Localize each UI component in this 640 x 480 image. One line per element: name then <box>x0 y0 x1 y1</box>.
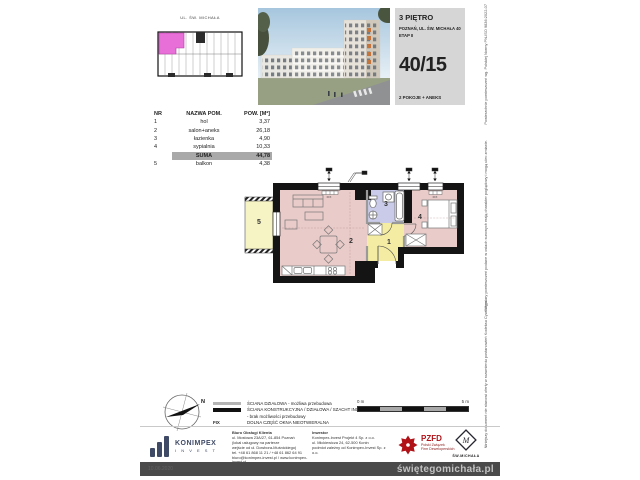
header-name: NAZWA POM. <box>172 110 236 118</box>
suma-area: 44,78 <box>236 152 272 160</box>
row-name: łazienka <box>172 135 236 143</box>
partition-wall-swatch <box>213 402 243 405</box>
row-nr: 3 <box>152 135 172 143</box>
konimpex-logo: KONIMPEX I N V E S T <box>148 433 217 459</box>
layout-label: 2 POKOJE + ANEKS <box>399 95 461 100</box>
table-row: 3 łazienka 4,90 <box>152 135 272 143</box>
michala-diamond-icon: M <box>454 429 478 453</box>
konimpex-sub: I N V E S T <box>175 448 217 453</box>
suma-row: SUMA 44,78 <box>152 152 272 160</box>
row-area: 26,18 <box>236 126 272 134</box>
row-nr: 4 <box>152 143 172 151</box>
window-bathroom <box>398 183 420 190</box>
room-number-hol: 1 <box>387 239 391 246</box>
legend-structural-text-2: - brak możliwości przebudowy <box>247 414 306 419</box>
scale-bar-segments <box>357 406 469 412</box>
address-label: POZNAŃ, UL. ŚW. MICHAŁA 40 <box>399 26 461 31</box>
row-area: 4,90 <box>236 135 272 143</box>
website-label: świętegomichała.pl <box>397 464 494 475</box>
table-row: 4 sypialnia 10,33 <box>152 143 272 151</box>
building-middle <box>292 48 346 78</box>
header-nr: NR <box>152 110 172 118</box>
room-table: NR NAZWA POM. POW. [M²] 1 hol 3,37 2 sal… <box>152 110 272 168</box>
legend-partition-text: ŚCIANA DZIAŁOWA - możliwa przebudowa <box>247 401 332 406</box>
row-name: salon+aneks <box>172 126 236 134</box>
row-area: 3,37 <box>236 118 272 126</box>
scale-start-label: 0 m <box>357 399 364 404</box>
row-name: balkon <box>172 160 236 168</box>
footer-bar: 10.06.2020 świętegomichała.pl <box>140 462 500 476</box>
table-row: 2 salon+aneks 26,18 <box>152 126 272 134</box>
office-info: Biuro Obsługi Klienta ul. Mostowa 23A/27… <box>232 431 312 465</box>
room-number-salon: 2 <box>349 238 353 245</box>
konimpex-logo-icon <box>148 433 172 459</box>
row-area: 10,33 <box>236 143 272 151</box>
room-number-balkon: 5 <box>257 219 261 226</box>
room-number-sypialnia: 4 <box>418 214 422 221</box>
building-left <box>261 55 294 78</box>
scale-end-label: 5 m <box>462 399 469 404</box>
row-nr: 2 <box>152 126 172 134</box>
structural-wall-swatch <box>213 408 243 412</box>
unit-number: 40/15 <box>399 54 461 77</box>
legend-fix-text: DOLNA CZĘŚĆ OKNA NIEOTWIERALNA <box>247 420 329 425</box>
balcony-door <box>273 212 280 236</box>
legend-fix-abbr: FIX <box>213 420 243 425</box>
scale-bar: 0 m 5 m <box>357 399 469 412</box>
fix-label-1: FIX <box>327 195 332 199</box>
floor-plan: 5 2 3 1 4 FIX FIX <box>238 166 474 336</box>
hall-closet <box>368 224 382 235</box>
suma-empty <box>152 152 172 160</box>
compass-icon: N <box>158 388 206 436</box>
window-bedroom <box>428 183 443 190</box>
kitchen-counter <box>282 266 345 275</box>
investor-line: podmiot zależny od Konimpex-Invest Sp. z… <box>312 446 392 456</box>
compass-north-label: N <box>201 399 205 405</box>
footer-divider <box>140 426 500 427</box>
document-date: 10.06.2020 <box>148 466 173 472</box>
floor-label: 3 PIĘTRO <box>399 13 461 22</box>
room-number-lazienka: 3 <box>384 201 388 208</box>
investor-info: Inwestor Konimpex-Invest Projekt 4 Sp. z… <box>312 431 392 456</box>
michala-label: ŚW.MICHAŁA <box>449 454 483 458</box>
suma-label: SUMA <box>172 152 236 160</box>
building-tower <box>344 20 380 78</box>
note-dimensions: Wymiary pomieszczeń podane w osiach suro… <box>483 140 488 310</box>
unit-info-card: 3 PIĘTRO POZNAŃ, UL. ŚW. MICHAŁA 40 ETAP… <box>395 8 465 105</box>
row-name: hol <box>172 118 236 126</box>
row-nr: 5 <box>152 160 172 168</box>
stage-label: ETAP II <box>399 33 461 38</box>
dimension-marks <box>326 168 438 182</box>
fix-label-2: FIX <box>433 195 438 199</box>
header-area: POW. [M²] <box>236 110 272 118</box>
konimpex-name: KONIMPEX <box>175 440 217 447</box>
michala-logo: M ŚW.MICHAŁA <box>449 429 483 458</box>
building-render-image <box>258 8 390 105</box>
site-plan: UL. ŚW. MICHAŁA <box>148 8 252 100</box>
table-header-row: NR NAZWA POM. POW. [M²] <box>152 110 272 118</box>
table-row: 1 hol 3,37 <box>152 118 272 126</box>
window-living <box>318 183 340 190</box>
michala-monogram: M <box>462 436 471 445</box>
row-name: sypialnia <box>172 143 236 151</box>
pzfd-logo: PZFD Polski Związek Firm Deweloperskich <box>398 435 455 455</box>
street-label: UL. ŚW. MICHAŁA <box>180 15 220 20</box>
note-norm: Powierzchnie pomieszczeń wg. Polskiej No… <box>483 4 488 125</box>
pzfd-star-icon <box>398 435 418 455</box>
row-nr: 1 <box>152 118 172 126</box>
